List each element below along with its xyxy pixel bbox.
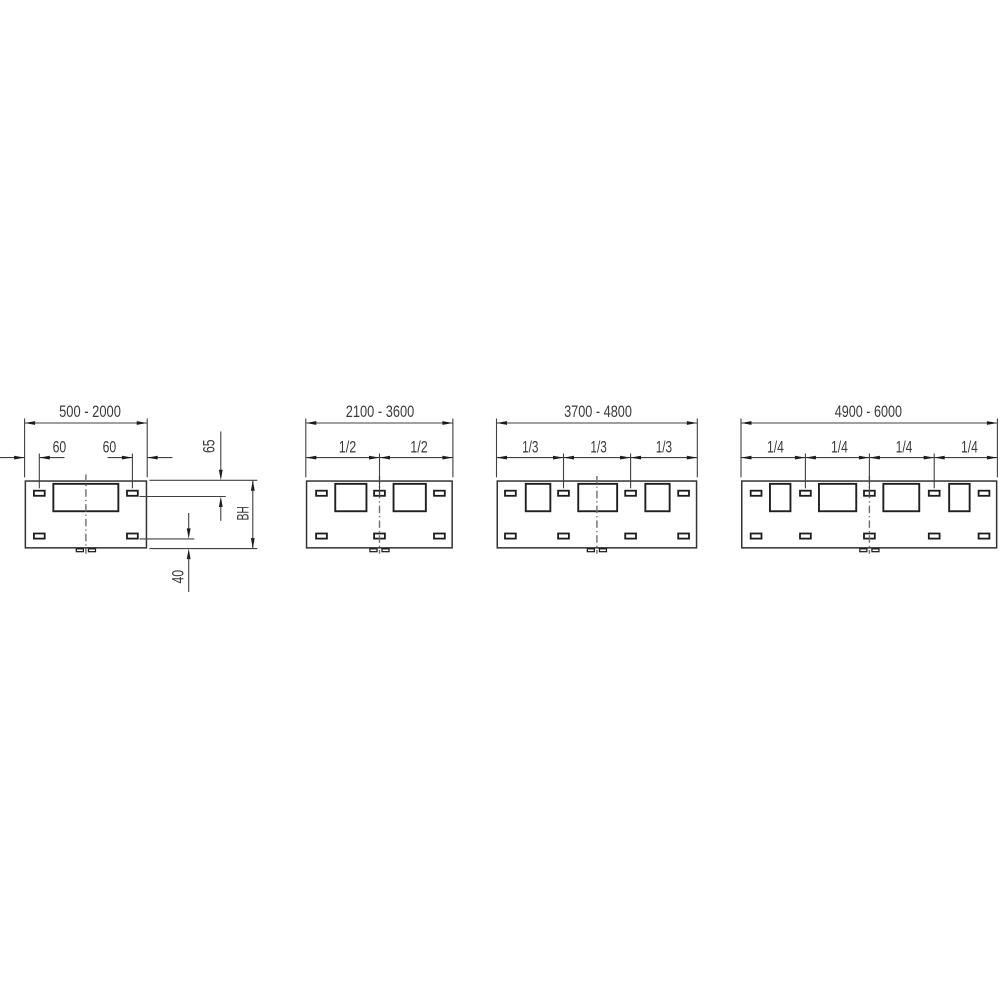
svg-text:3700 - 4800: 3700 - 4800 — [564, 402, 632, 421]
svg-text:1/2: 1/2 — [339, 438, 357, 457]
svg-text:60: 60 — [53, 438, 67, 457]
svg-text:2100 - 3600: 2100 - 3600 — [346, 402, 414, 421]
svg-text:1/4: 1/4 — [767, 438, 784, 457]
svg-text:1/4: 1/4 — [831, 438, 848, 457]
svg-text:4900 - 6000: 4900 - 6000 — [835, 402, 902, 421]
svg-text:60: 60 — [103, 438, 117, 457]
svg-text:500 - 2000: 500 - 2000 — [59, 402, 121, 421]
svg-text:BH: BH — [233, 506, 252, 521]
svg-text:65: 65 — [200, 439, 219, 453]
svg-text:1/4: 1/4 — [961, 438, 978, 457]
svg-text:1/3: 1/3 — [590, 438, 606, 457]
svg-text:1/3: 1/3 — [522, 438, 538, 457]
svg-text:1/3: 1/3 — [656, 438, 672, 457]
svg-text:40: 40 — [168, 570, 187, 584]
svg-text:1/4: 1/4 — [896, 438, 913, 457]
svg-text:1/2: 1/2 — [410, 438, 428, 457]
